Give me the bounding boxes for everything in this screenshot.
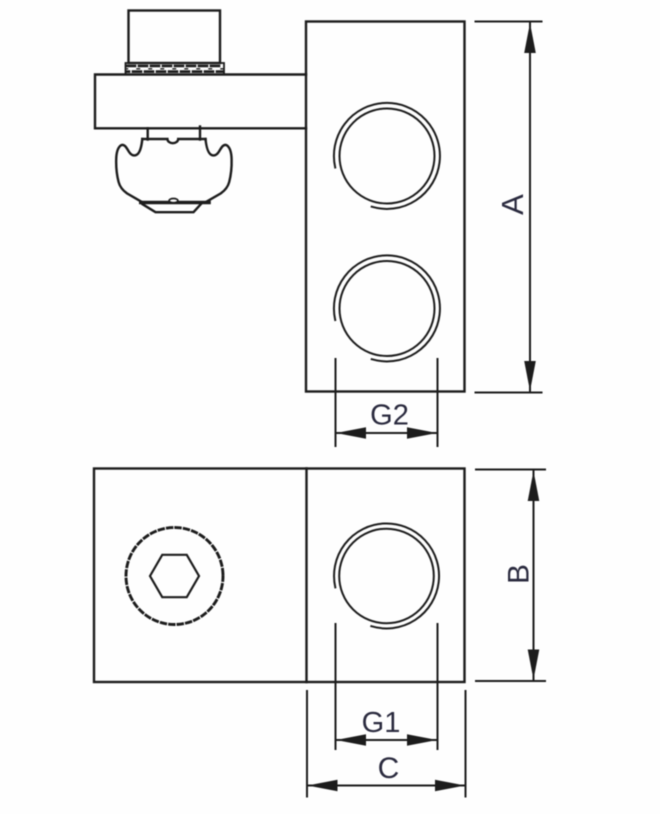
svg-text:B: B bbox=[503, 564, 536, 584]
svg-text:C: C bbox=[378, 752, 400, 785]
svg-text:G2: G2 bbox=[370, 400, 409, 432]
svg-text:A: A bbox=[495, 194, 530, 215]
svg-text:G1: G1 bbox=[362, 707, 401, 739]
